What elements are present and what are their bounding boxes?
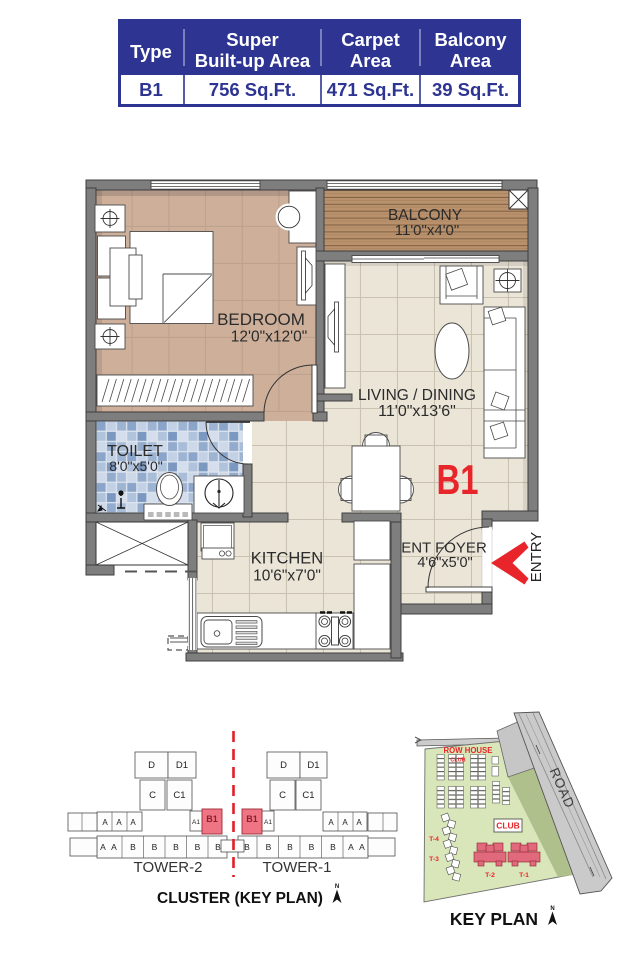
svg-text:CLUSTER (KEY PLAN): CLUSTER (KEY PLAN) — [157, 890, 323, 907]
svg-text:B: B — [173, 842, 179, 852]
svg-text:C1: C1 — [302, 790, 314, 801]
svg-text:471 Sq.Ft.: 471 Sq.Ft. — [327, 79, 414, 100]
svg-text:Super: Super — [226, 29, 278, 50]
svg-text:756 Sq.Ft.: 756 Sq.Ft. — [209, 79, 296, 100]
svg-text:B: B — [215, 842, 221, 852]
svg-text:TOWER-1: TOWER-1 — [263, 859, 332, 876]
svg-text:T-3: T-3 — [429, 856, 439, 863]
svg-text:KITCHEN: KITCHEN — [251, 550, 323, 568]
svg-text:B: B — [130, 842, 136, 852]
svg-text:N: N — [550, 906, 554, 912]
svg-text:Built-up Area: Built-up Area — [195, 50, 311, 71]
svg-text:B: B — [309, 842, 315, 852]
svg-text:A: A — [348, 842, 354, 852]
svg-text:8'0"x5'0": 8'0"x5'0" — [109, 458, 162, 474]
svg-text:C: C — [149, 790, 156, 801]
svg-text:T-4: T-4 — [429, 836, 439, 843]
svg-text:C: C — [279, 790, 286, 801]
svg-text:N: N — [335, 884, 339, 890]
svg-text:ROW HOUSE: ROW HOUSE — [444, 746, 493, 755]
svg-text:Balcony: Balcony — [435, 29, 508, 50]
svg-text:A: A — [116, 818, 122, 827]
svg-text:A: A — [328, 818, 334, 827]
svg-text:B: B — [195, 842, 201, 852]
svg-text:BEDROOM: BEDROOM — [217, 310, 305, 329]
svg-text:C1: C1 — [173, 790, 185, 801]
svg-text:10'6"x7'0": 10'6"x7'0" — [253, 568, 321, 585]
svg-text:B: B — [266, 842, 272, 852]
svg-text:B: B — [152, 842, 158, 852]
svg-text:A: A — [100, 842, 106, 852]
svg-text:CLUB: CLUB — [496, 821, 520, 831]
svg-text:B: B — [330, 842, 336, 852]
svg-text:D1: D1 — [307, 760, 319, 771]
svg-text:A1: A1 — [192, 819, 200, 826]
svg-text:TOWER-2: TOWER-2 — [134, 859, 203, 876]
svg-text:B1: B1 — [246, 814, 258, 824]
svg-text:Carpet: Carpet — [341, 29, 400, 50]
svg-text:B1: B1 — [206, 814, 218, 824]
svg-text:D1: D1 — [176, 760, 188, 771]
svg-text:B1: B1 — [139, 79, 163, 100]
svg-text:D: D — [280, 760, 287, 771]
svg-text:B1: B1 — [437, 456, 479, 503]
svg-text:CLUB: CLUB — [450, 758, 465, 764]
svg-text:ENTRY: ENTRY — [528, 532, 545, 583]
svg-text:B: B — [287, 842, 293, 852]
svg-text:B: B — [244, 842, 250, 852]
svg-text:D: D — [148, 760, 155, 771]
svg-text:Area: Area — [350, 50, 392, 71]
svg-text:39 Sq.Ft.: 39 Sq.Ft. — [432, 79, 509, 100]
svg-text:ENT FOYER: ENT FOYER — [401, 540, 487, 557]
svg-text:A1: A1 — [264, 819, 272, 826]
svg-text:A: A — [130, 818, 136, 827]
svg-text:4'6"x5'0": 4'6"x5'0" — [417, 555, 472, 571]
svg-text:T-1: T-1 — [519, 872, 529, 879]
svg-text:12'0"x12'0": 12'0"x12'0" — [231, 329, 307, 346]
svg-text:Type: Type — [130, 41, 172, 62]
svg-text:LIVING / DINING: LIVING / DINING — [358, 387, 476, 404]
svg-text:A: A — [102, 818, 108, 827]
svg-text:A: A — [359, 842, 365, 852]
svg-text:Area: Area — [450, 50, 492, 71]
svg-text:A: A — [111, 842, 117, 852]
svg-text:11'0"x13'6": 11'0"x13'6" — [378, 403, 456, 420]
svg-text:A: A — [342, 818, 348, 827]
svg-text:A: A — [356, 818, 362, 827]
svg-text:11'0"x4'0": 11'0"x4'0" — [395, 222, 459, 239]
svg-text:T-2: T-2 — [485, 872, 495, 879]
svg-text:KEY PLAN: KEY PLAN — [450, 909, 538, 929]
